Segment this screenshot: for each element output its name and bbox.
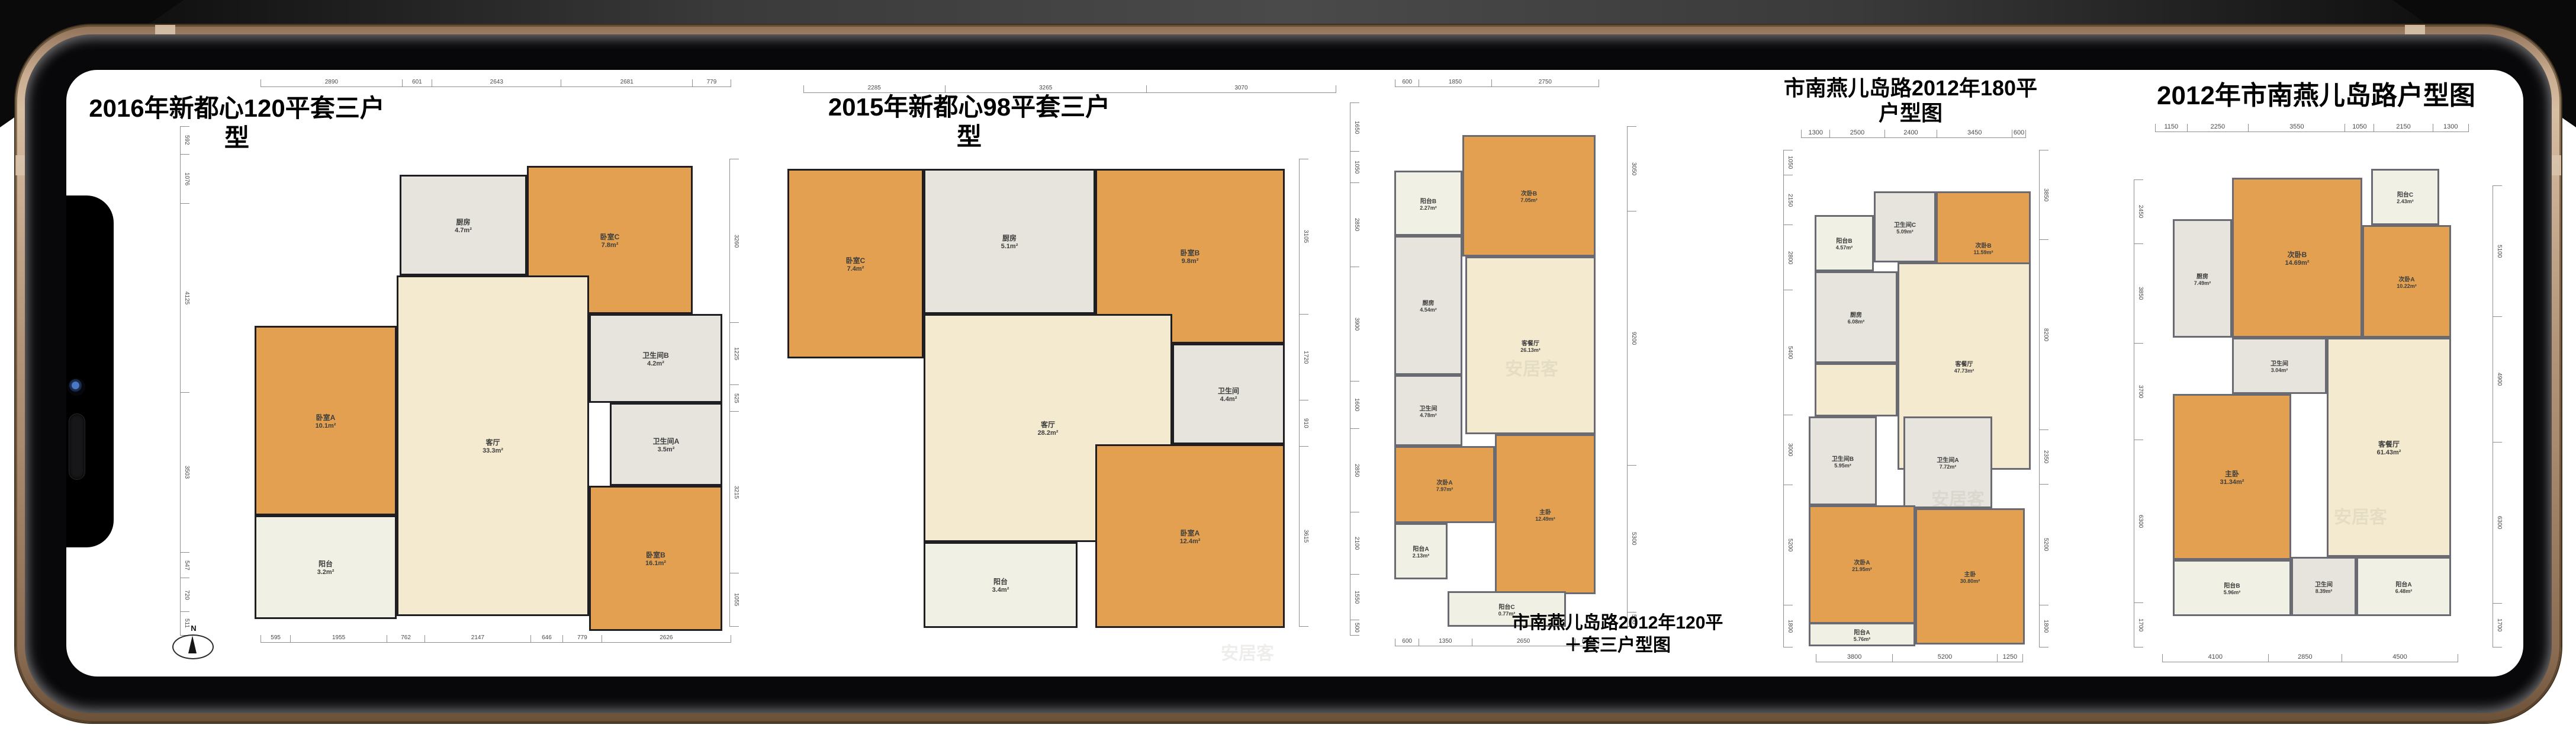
dimension-value: 3850 xyxy=(2040,150,2048,239)
plan5-dimensions-left: 24503850370063001700 xyxy=(2134,179,2143,647)
dimension-value: 5400 xyxy=(1784,290,1793,415)
dimension-value: 2643 xyxy=(432,79,561,87)
plan3-dimensions-right: 305092005300500 xyxy=(1627,126,1636,627)
plan4-dimensions-right: 38508200235052001800 xyxy=(2039,150,2048,647)
dimension-value: 2450 xyxy=(2134,179,2143,243)
room: 阳台B5.96m² xyxy=(2173,560,2291,616)
dimension-value: 3503 xyxy=(181,392,189,553)
plan1-dimensions-bottom: 595195576221476467792626 xyxy=(261,634,731,643)
dimension-value: 601 xyxy=(403,79,432,87)
plan5-title: 2012年市南燕儿岛路户型图 xyxy=(2121,81,2511,111)
dimension-value: 1055 xyxy=(730,573,739,627)
dimension-value: 500 xyxy=(1350,620,1359,636)
dimension-value: 2150 xyxy=(2374,124,2433,132)
room: 卫生间4.4m² xyxy=(1172,344,1285,444)
dimension-value: 595 xyxy=(261,635,291,643)
dimension-value: 1700 xyxy=(2134,602,2143,647)
phone-screen: 2016年新都心120平套三户型 289060126432681779 5921… xyxy=(66,70,2523,677)
plan2-dimensions-right: 310517209103615 xyxy=(1299,159,1308,627)
earpiece-speaker-icon xyxy=(69,413,85,480)
room: 阳台C2.43m² xyxy=(2371,169,2439,225)
room: 卫生间A3.5m² xyxy=(610,403,722,486)
room: 卫生间3.04m² xyxy=(2232,338,2327,394)
dimension-value: 600 xyxy=(2012,130,2026,138)
floor-plan-5: 次卧B14.69m² 阳台C2.43m² 次卧A10.22m² 厨房7.49m²… xyxy=(2155,142,2463,649)
floor-plan-1: 厨房4.7m² 卧室C7.8m² 卫生间B4.2m² 卫生间A3.5m² 客厅3… xyxy=(249,160,728,634)
dimension-value: 2626 xyxy=(602,635,731,643)
room: 阳台3.2m² xyxy=(255,515,397,619)
dimension-value: 6300 xyxy=(2493,442,2502,603)
room xyxy=(1815,363,1898,416)
dimension-value: 3000 xyxy=(1784,415,1793,485)
dimension-value: 1600 xyxy=(1350,381,1359,428)
room: 次卧A10.22m² xyxy=(2362,225,2451,338)
room: 卫生间4.78m² xyxy=(1394,375,1462,446)
dimension-value: 525 xyxy=(730,384,739,411)
room: 厨房5.1m² xyxy=(924,169,1095,314)
room: 卫生间8.39m² xyxy=(2291,557,2356,616)
plan1-dimensions-left: 592107641253503547720511 xyxy=(180,126,189,636)
dimension-value: 5200 xyxy=(1893,654,1998,662)
dimension-value: 1955 xyxy=(291,635,387,643)
dimension-value: 3700 xyxy=(2134,343,2143,439)
watermark: 安居客 xyxy=(1505,354,1558,380)
phone-frame: 2016年新都心120平套三户型 289060126432681779 5921… xyxy=(15,25,2561,723)
antenna-line xyxy=(2405,25,2425,35)
dimension-value: 1720 xyxy=(1300,314,1308,400)
dimension-value: 2890 xyxy=(261,79,403,87)
room: 阳台A2.13m² xyxy=(1394,523,1448,579)
room: 卧室A10.1m² xyxy=(255,326,397,515)
floor-plan-4: 阳台B4.57m² 卫生间C5.09m² 次卧B11.59m² 厨房6.08m²… xyxy=(1806,150,2037,647)
dimension-value: 8200 xyxy=(2040,239,2048,429)
plan5-dimensions-top: 115022503550105021501300 xyxy=(2155,123,2469,132)
dimension-value: 2285 xyxy=(803,85,946,93)
dimension-value: 1050 xyxy=(1784,150,1793,175)
dimension-value: 1650 xyxy=(1350,102,1359,151)
dimension-value: 2850 xyxy=(1350,182,1359,267)
plan2-dimensions-top: 228532653070 xyxy=(803,84,1336,93)
floor-plan-2: 卧室C7.4m² 厨房5.1m² 卧室B9.8m² 客厅28.2m² 卫生间4.… xyxy=(782,160,1291,634)
dimension-value: 9200 xyxy=(1628,211,1636,465)
antenna-line xyxy=(15,155,25,175)
dimension-value: 5300 xyxy=(1628,465,1636,612)
room: 卫生间B4.2m² xyxy=(589,314,722,403)
dimension-value: 646 xyxy=(531,635,563,643)
dimension-value: 3850 xyxy=(2134,243,2143,344)
room: 卫生间C5.09m² xyxy=(1874,191,1936,262)
dimension-value: 1300 xyxy=(1801,130,1830,138)
dimension-value: 2147 xyxy=(425,635,531,643)
dimension-value: 4100 xyxy=(2162,654,2269,662)
room: 厨房7.49m² xyxy=(2173,219,2232,338)
room: 厨房6.08m² xyxy=(1815,271,1898,363)
dimension-value: 1800 xyxy=(2040,605,2048,647)
plan4-title: 市南燕儿岛路2012年180平户型图 xyxy=(1777,76,2044,126)
room: 次卧A7.97m² xyxy=(1394,446,1495,523)
dimension-value: 1350 xyxy=(1419,639,1472,646)
room: 客厅33.3m² xyxy=(397,275,589,616)
front-camera-icon xyxy=(67,378,85,396)
dimension-value: 1800 xyxy=(1784,605,1793,647)
room: 卧室B16.1m² xyxy=(589,486,722,631)
plan4-dimensions-top: 1300250024003450600 xyxy=(1801,129,2026,138)
room: 主卧30.80m² xyxy=(1915,508,2025,645)
plan1-dimensions-top: 289060126432681779 xyxy=(261,78,731,87)
dimension-value: 5100 xyxy=(2493,185,2502,316)
antenna-line xyxy=(2551,155,2561,175)
room: 卧室C7.4m² xyxy=(787,169,924,358)
dimension-value: 600 xyxy=(1395,79,1419,87)
dimension-value: 1850 xyxy=(1419,79,1491,87)
plan3-dimensions-left: 16501050285039001600285021001550500 xyxy=(1350,102,1359,636)
room: 阳台3.4m² xyxy=(924,542,1078,628)
dimension-value: 779 xyxy=(563,635,602,643)
dimension-value: 1150 xyxy=(2155,124,2188,132)
room: 阳台B2.27m² xyxy=(1394,171,1462,236)
dimension-value: 4900 xyxy=(2493,316,2502,442)
dimension-value: 779 xyxy=(693,79,731,87)
dimension-value: 4500 xyxy=(2342,654,2458,662)
dimension-value: 2750 xyxy=(1492,79,1599,87)
dimension-value: 762 xyxy=(387,635,425,643)
plan4-dimensions-left: 1050215028005400300052001800 xyxy=(1783,150,1793,647)
dimension-value: 3550 xyxy=(2249,124,2345,132)
plan1-title: 2016年新都心120平套三户型 xyxy=(77,94,397,152)
dimension-value: 910 xyxy=(1300,400,1308,445)
plan5-dimensions-right: 5100490063001700 xyxy=(2493,185,2502,647)
dimension-value: 2681 xyxy=(561,79,692,87)
dimension-value: 1300 xyxy=(2433,124,2469,132)
floor-plan-3: 阳台B2.27m² 次卧B7.05m² 厨房4.54m² 客餐厅26.13m² … xyxy=(1391,102,1599,630)
room: 次卧A21.95m² xyxy=(1809,505,1915,624)
dimension-value: 1050 xyxy=(1350,151,1359,182)
dimension-value: 1700 xyxy=(2493,603,2502,647)
notch xyxy=(66,195,114,547)
watermark: 安居客 xyxy=(2334,502,2387,528)
room: 阳台B4.57m² xyxy=(1815,215,1874,271)
dimension-value: 5200 xyxy=(2040,484,2048,605)
room: 阳台A6.48m² xyxy=(2356,557,2451,616)
dimension-value: 3450 xyxy=(1937,130,2012,138)
dimension-value: 1550 xyxy=(1350,574,1359,620)
plan4-dimensions-bottom: 380052001250 xyxy=(1816,653,2023,662)
dimension-value: 3900 xyxy=(1350,267,1359,381)
room: 厨房4.54m² xyxy=(1394,236,1462,375)
dimension-value: 2150 xyxy=(1784,175,1793,225)
backdrop-shade xyxy=(0,0,2576,27)
dimension-value: 2800 xyxy=(1784,225,1793,290)
dimension-value: 600 xyxy=(1395,639,1419,646)
dimension-value: 6300 xyxy=(2134,440,2143,602)
dimension-value: 1076 xyxy=(181,154,189,204)
dimension-value: 3215 xyxy=(730,411,739,573)
dimension-value: 2400 xyxy=(1885,130,1938,138)
dimension-value: 2100 xyxy=(1350,512,1359,574)
plan5-dimensions-bottom: 410028504500 xyxy=(2162,653,2458,662)
room: 卫生间B5.95m² xyxy=(1809,416,1877,505)
dimension-value: 3265 xyxy=(946,85,1147,93)
dimension-value: 3260 xyxy=(730,159,739,322)
dimension-value: 3070 xyxy=(1147,85,1336,93)
dimension-value: 547 xyxy=(181,552,189,578)
room: 客餐厅26.13m² xyxy=(1465,257,1596,434)
dimension-value: 1250 xyxy=(1998,654,2023,662)
dimension-value: 2850 xyxy=(1350,428,1359,512)
room: 阳台A5.76m² xyxy=(1809,623,1915,646)
plan2-title: 2015年新都心98平套三户型 xyxy=(818,92,1120,151)
dimension-value: 4125 xyxy=(181,203,189,392)
plan3-dimensions-top: 60018502750 xyxy=(1395,78,1599,87)
dimension-value: 3050 xyxy=(1628,126,1636,211)
room: 主卧12.49m² xyxy=(1495,434,1596,594)
room: 次卧B7.05m² xyxy=(1462,135,1596,257)
dimension-value: 1225 xyxy=(730,322,739,384)
dimension-value: 2850 xyxy=(2269,654,2342,662)
watermark: 安居客 xyxy=(1931,485,1985,511)
dimension-value: 3105 xyxy=(1300,159,1308,314)
dimension-value: 2250 xyxy=(2188,124,2249,132)
watermark: 安居客 xyxy=(1221,639,1274,665)
dimension-value: 5200 xyxy=(1784,485,1793,605)
dimension-value: 592 xyxy=(181,126,189,154)
plan1-dimensions-right: 3260122552532151055 xyxy=(729,159,739,627)
compass-north-icon: N xyxy=(170,624,217,659)
dimension-value: 3800 xyxy=(1816,654,1893,662)
dimension-value: 2500 xyxy=(1830,130,1884,138)
room: 主卧31.34m² xyxy=(2173,394,2291,560)
plan3-caption: 市南燕儿岛路2012年120平 ＋套三户型图 xyxy=(1499,612,1736,656)
room: 卧室A12.4m² xyxy=(1095,444,1285,628)
dimension-value: 3615 xyxy=(1300,446,1308,627)
room: 次卧B14.69m² xyxy=(2232,178,2362,338)
antenna-line xyxy=(155,25,175,35)
dimension-value: 1050 xyxy=(2345,124,2374,132)
dimension-value: 2350 xyxy=(2040,429,2048,485)
dimension-value: 720 xyxy=(181,578,189,611)
room: 厨房4.7m² xyxy=(400,175,527,275)
